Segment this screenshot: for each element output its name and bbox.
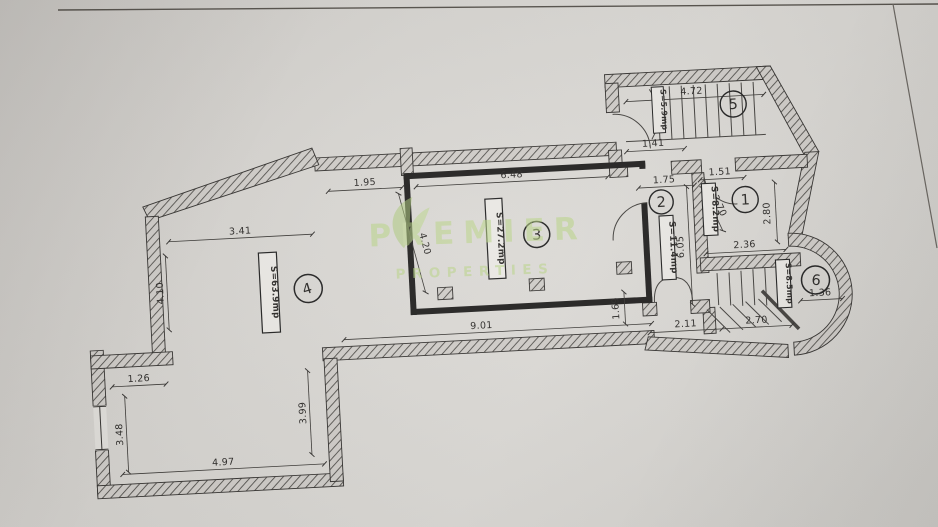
pillar-1 [437,287,453,300]
wall-se-band [644,330,788,365]
room2-number: 2 [656,195,666,211]
dim-top-main: 6.48 [500,169,523,181]
wall-bl-right [324,358,343,482]
photographed-floor-plan-sheet: 1.95 6.48 3.41 4.10 4.20 1.26 3.48 4.97 … [0,0,938,527]
dim-room1-right: 2.80 [761,202,773,225]
dim-stair-hall: 1.41 [642,138,665,150]
dim-lobby-left: 2.11 [674,318,697,330]
dim-hall-bottom: 9.01 [470,320,493,332]
dim-left-vertical: 4.10 [155,282,167,305]
watermark-line1: PREMIER [368,211,587,255]
pillar-2 [529,278,545,291]
dim-top-left: 1.95 [353,177,376,189]
pillar-3 [616,262,632,275]
dim-room1-top: 1.51 [708,166,731,178]
dim-stairs-width: 4.72 [680,86,703,98]
floor-plan-svg: 1.95 6.48 3.41 4.10 4.20 1.26 3.48 4.97 … [0,0,938,527]
wall-hall-south [322,330,654,360]
watermark: PREMIER PROPERTIES [367,191,588,284]
wall-chamfer-nw [140,148,321,221]
sheet-frame-right [893,4,937,248]
dim-room1-bottom: 2.36 [733,239,756,251]
dimension-lines [99,91,850,475]
pillar-room3-nw [400,148,413,176]
room4-number: 4 [301,281,315,299]
floor-plan: 1.95 6.48 3.41 4.10 4.20 1.26 3.48 4.97 … [77,62,861,498]
dim-bl-right: 3.99 [297,401,309,424]
dim-room2-top: 1.75 [653,174,676,186]
sheet-frame-top [58,4,938,10]
dim-exit-step: 1.69 [610,297,622,320]
room-labels: S=27.2mp 3 S=63.9mp 4 S=11.4mp 2 S=8.2mp… [251,78,831,334]
wall-bl-bottom [97,473,343,499]
wall-chamfer-ne [756,64,819,159]
dim-bl-bottom: 4.97 [212,457,235,469]
double-door-leaf-1 [653,277,673,302]
dim-bl-left: 3.48 [114,423,126,446]
dim-bl-notch: 1.26 [127,373,150,385]
window [93,405,108,451]
room1-number: 1 [740,192,750,208]
room5-number: 5 [728,97,738,113]
dim-upper-left: 3.41 [229,225,252,237]
room6-number: 6 [811,273,822,290]
dim-lobby-right: 2.70 [745,315,768,327]
wall-stair-top [604,66,770,88]
double-door-leaf-2 [672,276,692,301]
